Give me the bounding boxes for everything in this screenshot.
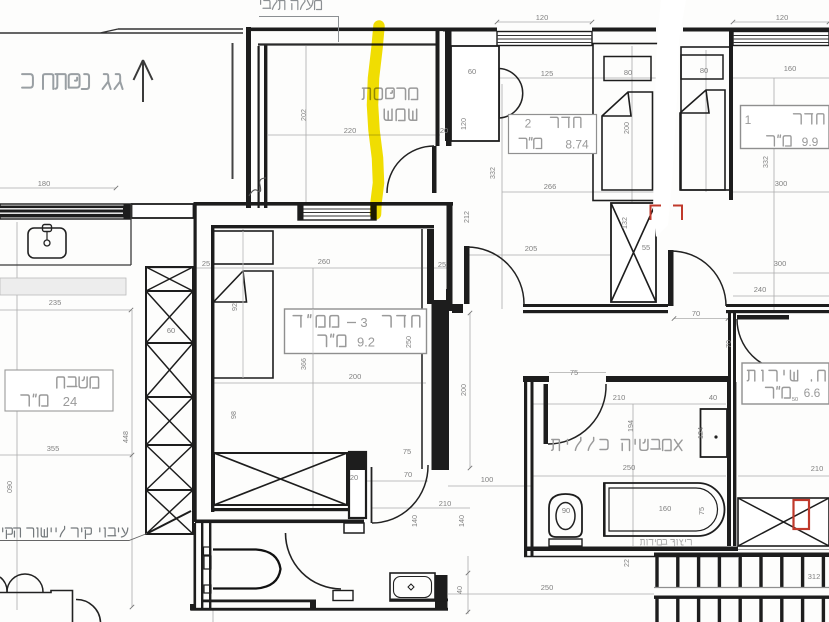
- svg-text:355: 355: [47, 444, 60, 453]
- svg-text:332: 332: [761, 156, 770, 168]
- svg-text:366: 366: [299, 358, 308, 370]
- svg-text:55: 55: [642, 243, 650, 252]
- svg-text:332: 332: [488, 167, 497, 179]
- svg-text:235: 235: [49, 298, 62, 307]
- svg-text:120: 120: [459, 118, 468, 130]
- svg-text:80: 80: [624, 68, 632, 77]
- svg-text:25: 25: [202, 259, 210, 268]
- svg-text:266: 266: [544, 182, 557, 191]
- svg-text:120: 120: [536, 13, 549, 22]
- svg-text:20: 20: [350, 473, 358, 482]
- svg-text:50: 50: [792, 397, 798, 403]
- svg-text:160: 160: [659, 504, 672, 513]
- svg-text:240: 240: [754, 285, 767, 294]
- svg-text:205: 205: [525, 244, 538, 253]
- svg-text:40: 40: [455, 586, 464, 594]
- svg-text:210: 210: [439, 499, 452, 508]
- svg-text:210: 210: [811, 464, 824, 473]
- svg-text:90: 90: [562, 506, 570, 515]
- svg-text:250: 250: [541, 583, 554, 592]
- svg-text:25: 25: [438, 260, 446, 269]
- svg-text:9.9: 9.9: [802, 135, 819, 149]
- svg-text:3: 3: [360, 315, 367, 330]
- svg-text:20: 20: [440, 126, 448, 135]
- svg-text:448: 448: [121, 431, 130, 443]
- svg-text:125: 125: [541, 69, 554, 78]
- svg-text:160: 160: [784, 64, 797, 73]
- svg-text:70: 70: [724, 340, 733, 348]
- svg-text:70: 70: [404, 470, 412, 479]
- svg-text:250: 250: [404, 336, 413, 348]
- svg-text:140: 140: [457, 515, 466, 527]
- svg-text:210: 210: [613, 393, 626, 402]
- svg-text:1: 1: [745, 113, 752, 127]
- svg-text:300: 300: [774, 259, 787, 268]
- svg-text:70: 70: [692, 309, 700, 318]
- svg-text:090: 090: [5, 481, 14, 493]
- svg-text:140: 140: [410, 515, 419, 527]
- svg-text:98: 98: [229, 411, 238, 419]
- svg-text:100: 100: [481, 475, 494, 484]
- svg-text:132: 132: [620, 217, 629, 229]
- svg-text:260: 260: [318, 257, 331, 266]
- svg-text:24: 24: [63, 394, 77, 409]
- svg-text:60: 60: [167, 326, 175, 335]
- svg-text:9.2: 9.2: [357, 335, 375, 350]
- svg-text:194: 194: [626, 420, 635, 432]
- svg-text:124: 124: [696, 427, 705, 439]
- svg-text:200: 200: [349, 372, 362, 381]
- svg-text:75: 75: [697, 507, 706, 515]
- svg-text:312: 312: [808, 572, 821, 581]
- svg-text:180: 180: [38, 179, 51, 188]
- svg-text:22: 22: [622, 559, 631, 567]
- svg-text:40: 40: [709, 393, 717, 402]
- svg-text:8.74: 8.74: [565, 138, 589, 152]
- svg-text:212: 212: [462, 211, 471, 223]
- svg-text:60: 60: [468, 67, 476, 76]
- svg-text:2: 2: [525, 117, 532, 131]
- svg-text:75: 75: [403, 447, 411, 456]
- svg-text:92: 92: [230, 303, 239, 311]
- svg-text:75: 75: [570, 368, 578, 377]
- svg-text:300: 300: [775, 179, 788, 188]
- svg-text:250: 250: [623, 463, 636, 472]
- svg-text:80: 80: [700, 66, 708, 75]
- svg-text:202: 202: [299, 109, 308, 121]
- svg-text:200: 200: [622, 122, 631, 134]
- svg-text:6.6: 6.6: [804, 386, 821, 400]
- svg-text:200: 200: [459, 384, 468, 396]
- svg-text:220: 220: [344, 126, 357, 135]
- svg-text:120: 120: [776, 13, 789, 22]
